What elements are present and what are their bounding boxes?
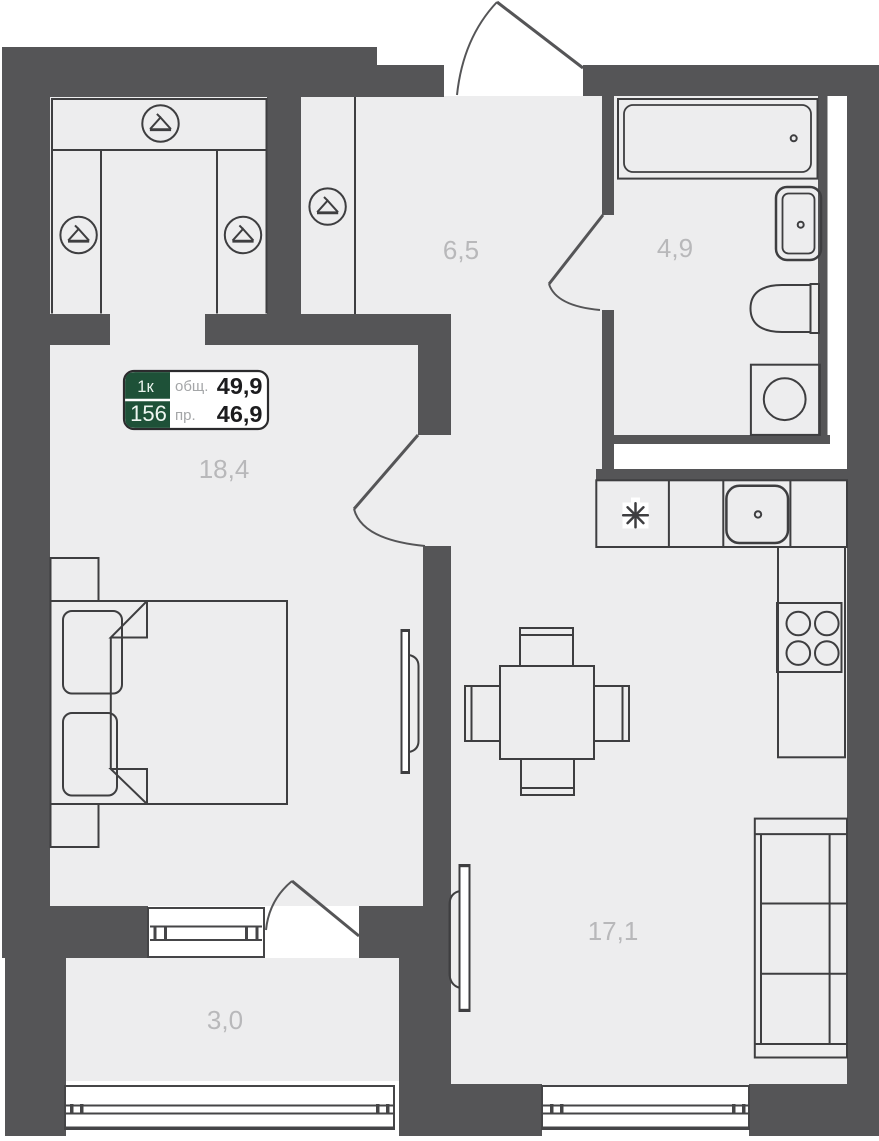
svg-text:3,0: 3,0 (207, 1005, 243, 1035)
svg-text:156: 156 (130, 401, 167, 426)
svg-text:46,9: 46,9 (217, 401, 263, 427)
svg-text:4,9: 4,9 (657, 233, 693, 263)
svg-text:17,1: 17,1 (588, 916, 639, 946)
svg-text:общ.: общ. (175, 378, 208, 395)
svg-text:18,4: 18,4 (199, 454, 250, 484)
svg-text:6,5: 6,5 (443, 235, 479, 265)
svg-text:1к: 1к (137, 378, 154, 396)
svg-text:пр.: пр. (175, 407, 196, 424)
svg-text:49,9: 49,9 (217, 373, 263, 399)
